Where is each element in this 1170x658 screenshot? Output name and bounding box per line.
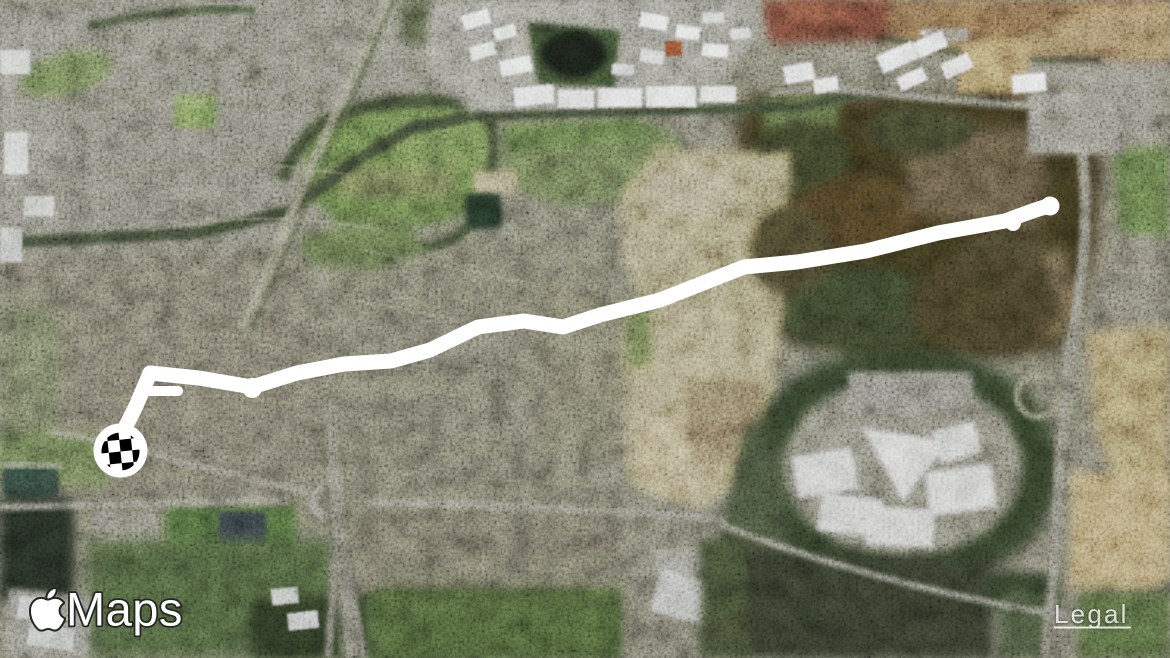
svg-text:Maps: Maps	[66, 583, 183, 636]
svg-text:Legal: Legal	[1054, 599, 1129, 629]
